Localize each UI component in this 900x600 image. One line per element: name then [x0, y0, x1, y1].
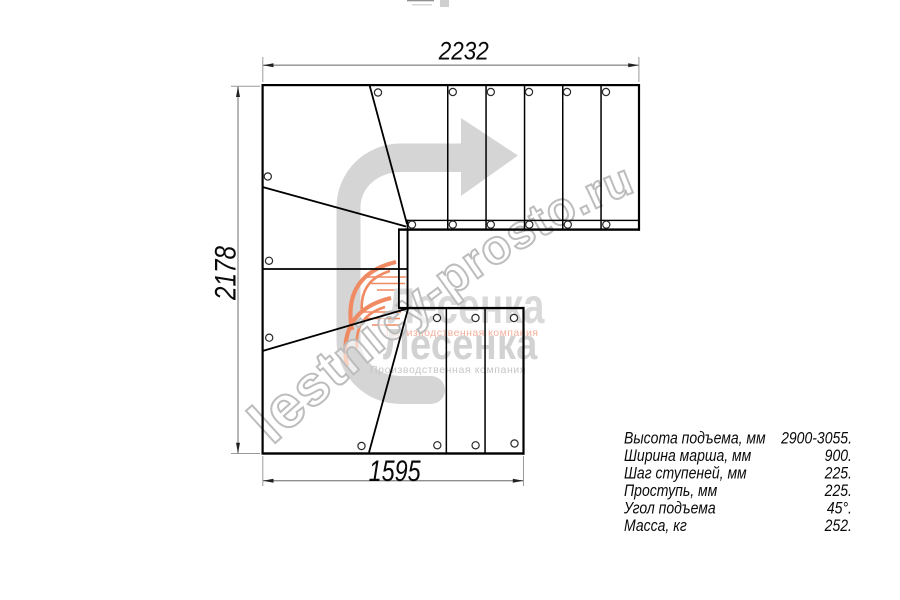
svg-text:2232: 2232 [438, 37, 489, 65]
svg-text:Масса, кг: Масса, кг [624, 517, 687, 535]
svg-text:Угол подъема: Угол подъема [623, 499, 716, 517]
svg-text:Ширина марша, мм: Ширина марша, мм [624, 447, 752, 465]
svg-text:Проступь, мм: Проступь, мм [624, 482, 718, 500]
svg-text:900.: 900. [825, 447, 852, 465]
svg-text:2900-3055.: 2900-3055. [780, 429, 852, 447]
svg-text:Шаг ступеней, мм: Шаг ступеней, мм [624, 464, 747, 482]
svg-text:45°.: 45°. [827, 499, 852, 517]
svg-text:1595: 1595 [369, 454, 422, 487]
svg-text:225.: 225. [824, 464, 852, 482]
svg-text:225.: 225. [824, 482, 852, 500]
svg-text:Высота подъема, мм: Высота подъема, мм [624, 429, 766, 447]
svg-text:252.: 252. [824, 517, 852, 535]
svg-text:2178: 2178 [208, 245, 242, 301]
